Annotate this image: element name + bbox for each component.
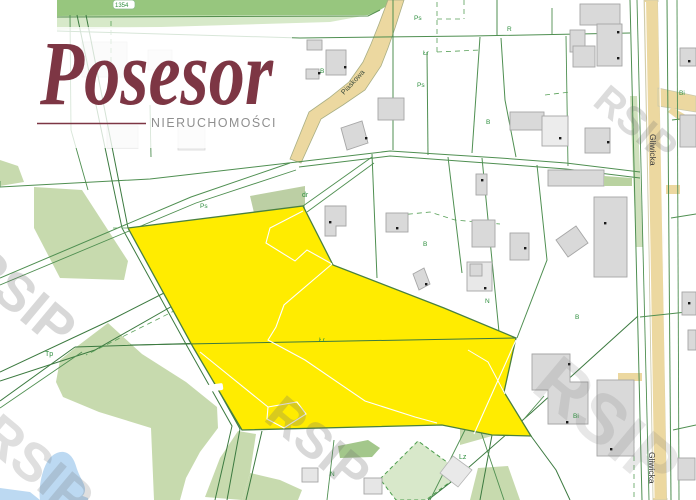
svg-text:B: B bbox=[575, 314, 579, 321]
svg-text:B: B bbox=[486, 119, 490, 126]
svg-text:N: N bbox=[485, 298, 490, 305]
svg-text:B: B bbox=[320, 68, 324, 75]
svg-text:B: B bbox=[423, 241, 427, 248]
svg-text:Łr: Łr bbox=[423, 50, 430, 57]
svg-text:Posesor: Posesor bbox=[39, 22, 274, 124]
svg-text:Ps: Ps bbox=[200, 203, 208, 210]
svg-text:Ps: Ps bbox=[417, 82, 425, 89]
svg-text:Lz: Lz bbox=[459, 454, 467, 461]
svg-text:Łr: Łr bbox=[319, 337, 326, 344]
svg-text:Bi: Bi bbox=[679, 90, 685, 97]
svg-text:NIERUCHOMOŚCI: NIERUCHOMOŚCI bbox=[151, 115, 277, 130]
svg-text:Ps: Ps bbox=[414, 15, 422, 22]
svg-text:R: R bbox=[507, 26, 512, 33]
svg-text:dr: dr bbox=[302, 192, 309, 199]
svg-text:1354: 1354 bbox=[115, 3, 129, 9]
